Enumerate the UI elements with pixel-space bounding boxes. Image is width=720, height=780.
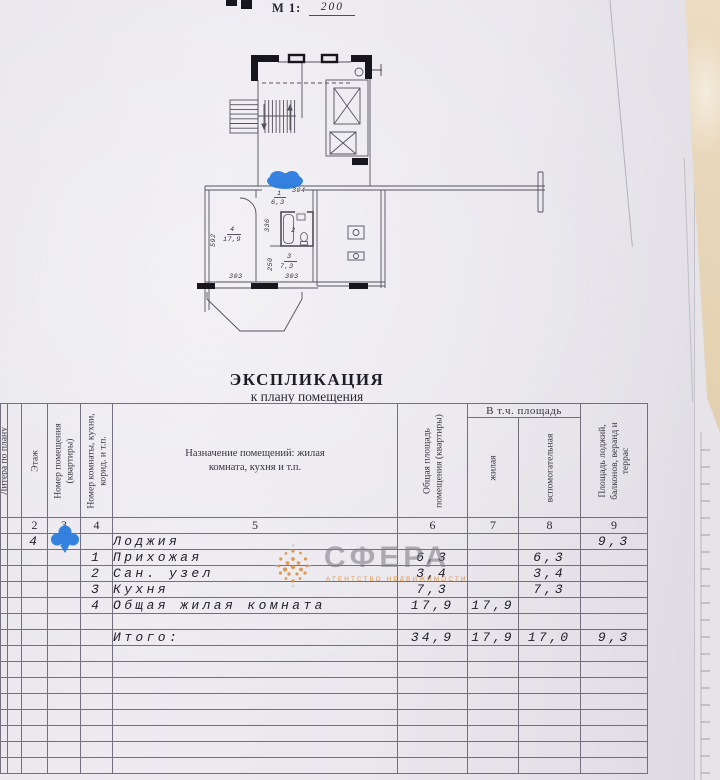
cell-unit (48, 742, 81, 758)
cell-living (468, 726, 519, 742)
cell-b (8, 742, 22, 758)
cell-b (8, 534, 22, 550)
cell-b (8, 550, 22, 566)
cell-unit (48, 598, 81, 614)
cell-unit (48, 726, 81, 742)
scanned-document-page: М 1: 200 (0, 0, 720, 780)
agency-watermark: СФЕРА АГЕНТСТВО НЕДВИЖИМОСТИ (272, 543, 468, 589)
plan-dim-label: 303 (285, 273, 298, 281)
cell-b (8, 710, 22, 726)
cell-total: 34,9 (398, 630, 468, 646)
cell-living (468, 694, 519, 710)
cell-aux (519, 694, 581, 710)
cropped-stamp-mark (226, 0, 237, 6)
col-header-living-area: жилая (468, 418, 519, 518)
cell-balcony (581, 726, 648, 742)
cell-b (8, 694, 22, 710)
cell-total (398, 742, 468, 758)
cell-total (398, 758, 468, 774)
cell-name (113, 678, 398, 694)
cell-unit (48, 662, 81, 678)
cell-room (81, 630, 113, 646)
cell-unit (48, 710, 81, 726)
cell-unit (48, 678, 81, 694)
cell-a (1, 742, 8, 758)
cell-room (81, 662, 113, 678)
cell-a (1, 566, 8, 582)
cell-total (398, 710, 468, 726)
cell-balcony (581, 662, 648, 678)
table-row (1, 678, 648, 694)
cell-b (8, 758, 22, 774)
table-row (1, 710, 648, 726)
cell-name (113, 662, 398, 678)
table-row (1, 646, 648, 662)
plan-dim-label: 6,3 (271, 199, 284, 207)
document-title: ЭКСПЛИКАЦИЯ (0, 370, 614, 390)
cell-aux (519, 534, 581, 550)
cell-balcony (581, 694, 648, 710)
cell-balcony (581, 614, 648, 630)
cell-total (398, 614, 468, 630)
cell-floor (22, 566, 48, 582)
table-row (1, 758, 648, 774)
cell-a (1, 710, 8, 726)
cell-b (8, 678, 22, 694)
cell-unit (48, 694, 81, 710)
cell-unit (48, 630, 81, 646)
table-row (1, 742, 648, 758)
paper-crease (609, 0, 633, 247)
cell-aux (519, 598, 581, 614)
cell-balcony (581, 710, 648, 726)
cell-a (1, 726, 8, 742)
cell-aux (519, 710, 581, 726)
cell-total (398, 726, 468, 742)
cell-aux (519, 726, 581, 742)
cell-room: 1 (81, 550, 113, 566)
cell-living: 17,9 (468, 630, 519, 646)
cell-room (81, 742, 113, 758)
cell-room (81, 646, 113, 662)
plan-dim-label: 2 (291, 227, 295, 235)
plan-dim-label: 1 (277, 190, 281, 198)
table-row (1, 614, 648, 630)
cell-aux (519, 614, 581, 630)
cell-room (81, 710, 113, 726)
cell-floor (22, 742, 48, 758)
cell-a (1, 758, 8, 774)
cell-a (1, 662, 8, 678)
paper-crease (684, 158, 694, 402)
cell-aux: 17,0 (519, 630, 581, 646)
cell-b (8, 614, 22, 630)
cell-floor (22, 662, 48, 678)
cell-name (113, 614, 398, 630)
cell-room (81, 534, 113, 550)
cell-total (398, 678, 468, 694)
cell-living (468, 582, 519, 598)
cell-floor (22, 678, 48, 694)
cell-living (468, 678, 519, 694)
cell-balcony (581, 550, 648, 566)
table-row: 4Общая жилая комната17,917,9 (1, 598, 648, 614)
cell-room (81, 726, 113, 742)
cell-name: Общая жилая комната (113, 598, 398, 614)
cell-name (113, 758, 398, 774)
cell-room (81, 614, 113, 630)
cell-a (1, 598, 8, 614)
watermark-tagline: АГЕНТСТВО НЕДВИЖИМОСТИ (324, 576, 468, 583)
cell-name (113, 742, 398, 758)
cell-floor (22, 710, 48, 726)
plan-dim-label: 17,9 (223, 236, 241, 244)
cell-floor (22, 582, 48, 598)
cell-total (398, 694, 468, 710)
cell-a (1, 550, 8, 566)
cell-b (8, 630, 22, 646)
cell-floor (22, 598, 48, 614)
cell-aux (519, 678, 581, 694)
explication-table: Литера по плану Этаж Номер помещения (кв… (0, 403, 649, 780)
cell-unit (48, 550, 81, 566)
cell-b (8, 646, 22, 662)
col-header-litera: Литера по плану (1, 404, 8, 518)
plan-dim-label: 303 (229, 273, 242, 281)
cell-living (468, 758, 519, 774)
cell-unit (48, 614, 81, 630)
cell-a (1, 646, 8, 662)
cell-aux: 3,4 (519, 566, 581, 582)
cell-room: 2 (81, 566, 113, 582)
cell-a (1, 678, 8, 694)
col-header-unit-number: Номер помещения (квартиры) (48, 404, 81, 518)
cell-balcony (581, 742, 648, 758)
cell-balcony: 9,3 (581, 630, 648, 646)
col-header-stub (8, 404, 22, 518)
cell-floor (22, 630, 48, 646)
cell-balcony (581, 678, 648, 694)
table-row (1, 694, 648, 710)
col-header-floor: Этаж (22, 404, 48, 518)
cell-room: 4 (81, 598, 113, 614)
cell-living (468, 710, 519, 726)
col-group-header-incl-area: В т.ч. площадь (468, 404, 581, 418)
table-row (1, 726, 648, 742)
cell-balcony (581, 758, 648, 774)
cell-b (8, 598, 22, 614)
cell-room: 3 (81, 582, 113, 598)
cell-floor (22, 646, 48, 662)
cell-unit (48, 566, 81, 582)
cell-aux (519, 758, 581, 774)
plan-dim-label: 4 (230, 226, 234, 234)
cell-living (468, 742, 519, 758)
cell-room (81, 694, 113, 710)
cell-total: 17,9 (398, 598, 468, 614)
cell-name (113, 694, 398, 710)
cell-floor (22, 758, 48, 774)
table-row (1, 662, 648, 678)
plan-scale: М 1: 200 (272, 1, 355, 16)
plan-dim-label: 336 (264, 219, 272, 232)
cell-balcony (581, 598, 648, 614)
plan-dim-label: 250 (267, 258, 275, 271)
cell-name (113, 726, 398, 742)
cell-balcony (581, 646, 648, 662)
table-row: Итого:34,917,917,09,3 (1, 630, 648, 646)
plan-dim-label: 592 (210, 234, 218, 247)
cell-b (8, 566, 22, 582)
cell-unit (48, 758, 81, 774)
cell-b (8, 582, 22, 598)
cell-floor (22, 694, 48, 710)
cell-aux (519, 646, 581, 662)
cell-balcony (581, 582, 648, 598)
cell-unit (48, 582, 81, 598)
watermark-logo-icon (272, 543, 314, 589)
cell-living (468, 662, 519, 678)
cell-balcony (581, 566, 648, 582)
cell-total (398, 662, 468, 678)
cropped-stamp-mark (241, 0, 252, 9)
cell-living (468, 534, 519, 550)
cell-living: 17,9 (468, 598, 519, 614)
col-header-total-area: Общая площадь помещения (квартиры) (398, 404, 468, 518)
cell-aux: 7,3 (519, 582, 581, 598)
cell-living (468, 646, 519, 662)
cell-living (468, 550, 519, 566)
scale-label: М 1: (272, 1, 301, 16)
cell-floor (22, 614, 48, 630)
cell-balcony: 9,3 (581, 534, 648, 550)
watermark-name: СФЕРА (324, 543, 468, 573)
cell-floor: 4 (22, 534, 48, 550)
cell-floor (22, 550, 48, 566)
cell-aux: 6,3 (519, 550, 581, 566)
cell-a (1, 614, 8, 630)
col-header-room-number: Номер комнаты, кухни, корид. и т.п. (81, 404, 113, 518)
column-number-row: 2 3 4 5 6 7 8 9 (1, 518, 648, 534)
cell-name (113, 710, 398, 726)
cell-unit (48, 534, 81, 550)
cell-room (81, 678, 113, 694)
cell-b (8, 662, 22, 678)
cell-aux (519, 662, 581, 678)
scale-value: 200 (309, 1, 355, 16)
cell-name: Итого: (113, 630, 398, 646)
cell-a (1, 534, 8, 550)
plan-dim-label: 304 (292, 187, 305, 195)
col-header-purpose: Назначение помещений: жилая комната, кух… (113, 404, 398, 518)
cell-total (398, 646, 468, 662)
cell-a (1, 582, 8, 598)
plan-dim-label: 3 (287, 253, 291, 261)
cell-room (81, 758, 113, 774)
cell-b (8, 726, 22, 742)
cell-aux (519, 742, 581, 758)
cell-name (113, 646, 398, 662)
cell-a (1, 694, 8, 710)
cell-living (468, 566, 519, 582)
cell-living (468, 614, 519, 630)
col-header-aux-area: вспомогательная (519, 418, 581, 518)
plan-dim-label: 7,3 (280, 263, 293, 271)
cell-a (1, 630, 8, 646)
col-header-balcony-area: Площадь лоджий, балконов, веранд и терра… (581, 404, 648, 518)
cell-unit (48, 646, 81, 662)
cell-floor (22, 726, 48, 742)
